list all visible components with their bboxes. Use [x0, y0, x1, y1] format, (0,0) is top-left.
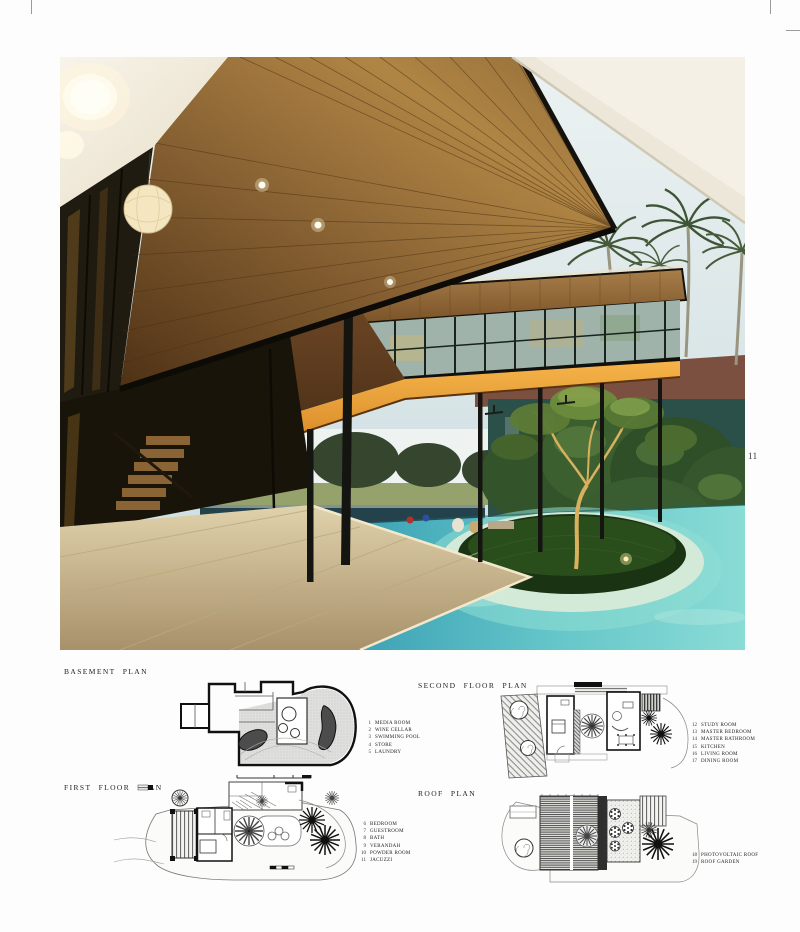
- crop-mark-top-right-horizontal: [786, 30, 800, 31]
- legend-item: 16LIVING ROOM: [688, 751, 755, 758]
- page-number: 11: [748, 451, 758, 461]
- basement-plan-legend: 1MEDIA ROOM 2WINE CELLAR 3SWIMMING POOL …: [362, 720, 420, 756]
- legend-item: 3SWIMMING POOL: [362, 734, 420, 741]
- house-photo-art: [60, 57, 745, 650]
- legend-item: 5LAUNDRY: [362, 749, 420, 756]
- roof-plan-drawing: [494, 792, 706, 890]
- legend-item: 15KITCHEN: [688, 744, 755, 751]
- legend-item: 7GUESTROOM: [357, 828, 411, 835]
- roof-plan-legend: 18PHOTOVOLTAIC ROOF 19ROOF GARDEN: [688, 852, 758, 866]
- book-page: { "page": { "number": "11" }, "photo": {…: [0, 0, 800, 932]
- legend-item: 14MASTER BATHROOM: [688, 736, 755, 743]
- crop-mark-top-right-vertical: [770, 0, 771, 14]
- legend-item: 19ROOF GARDEN: [688, 859, 758, 866]
- first-floor-plan-legend: 6BEDROOM 7GUESTROOM 8BATH 9VERANDAH 10PO…: [357, 821, 411, 864]
- legend-item: 18PHOTOVOLTAIC ROOF: [688, 852, 758, 859]
- legend-item: 9VERANDAH: [357, 843, 411, 850]
- legend-item: 4STORE: [362, 742, 420, 749]
- second-floor-plan-legend: 12STUDY ROOM 13MASTER BEDROOM 14MASTER B…: [688, 722, 755, 765]
- legend-item: 2WINE CELLAR: [362, 727, 420, 734]
- legend-item: 8BATH: [357, 835, 411, 842]
- legend-item: 17DINING ROOM: [688, 758, 755, 765]
- plans-section: BASEMENT PLAN 1MEDIA ROOM 2WINE CELLAR 3…: [0, 660, 800, 900]
- legend-item: 13MASTER BEDROOM: [688, 729, 755, 736]
- legend-item: 10POWDER ROOM: [357, 850, 411, 857]
- legend-item: 11JACUZZI: [357, 857, 411, 864]
- crop-mark-top-left: [31, 0, 32, 14]
- roof-plan-title: ROOF PLAN: [418, 789, 476, 798]
- basement-plan-title: BASEMENT PLAN: [64, 667, 148, 676]
- second-floor-plan-drawing: [497, 682, 697, 782]
- basement-plan-drawing: [175, 670, 360, 782]
- legend-item: 1MEDIA ROOM: [362, 720, 420, 727]
- first-floor-plan-drawing: [112, 778, 364, 886]
- legend-item: 6BEDROOM: [357, 821, 411, 828]
- house-photo: [60, 57, 745, 650]
- legend-item: 12STUDY ROOM: [688, 722, 755, 729]
